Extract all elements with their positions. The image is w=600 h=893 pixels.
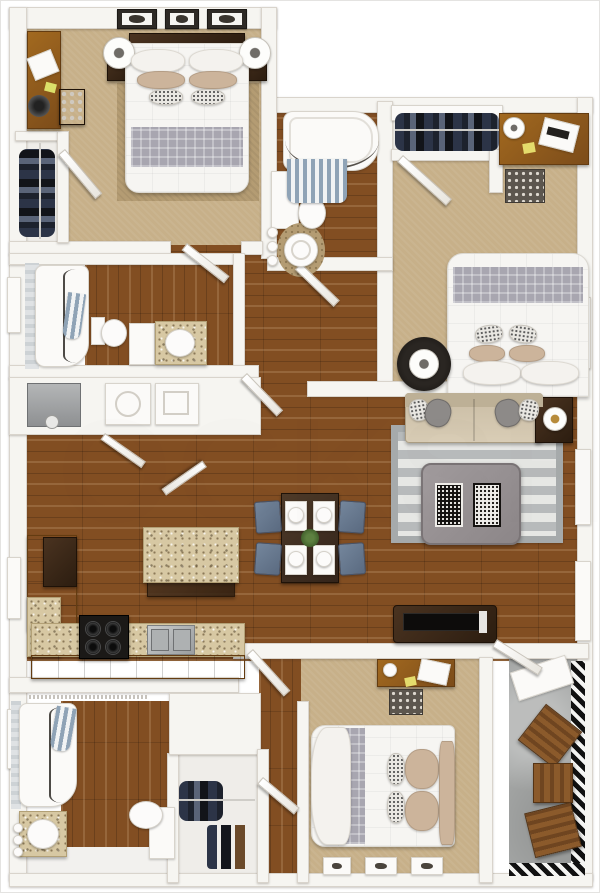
- window-right-living2: [575, 561, 591, 641]
- bed2-tan-pillow-left: [469, 345, 505, 362]
- desk1-lamp: [28, 95, 50, 117]
- closet3-rod: [179, 799, 255, 801]
- wall-fine-print: [29, 695, 149, 699]
- dryer-white-door: [163, 391, 189, 415]
- bed1-accent-pillow-right: [191, 89, 225, 105]
- pedestal-sink1-basin: [291, 240, 311, 260]
- kitchen-island: [143, 527, 239, 583]
- shelf-unit: [59, 89, 85, 125]
- bed1-pillow-tan-left: [137, 71, 185, 89]
- towel-roll-3: [267, 255, 278, 266]
- bed3-headboard: [439, 741, 455, 845]
- bed1-accent-pillow-left: [149, 89, 183, 105]
- wall-art-frame-3: [207, 9, 247, 29]
- bed2-plaid-runner: [453, 267, 583, 303]
- stove-burner-1: [85, 621, 101, 637]
- sofa-cushion-seam: [473, 399, 475, 441]
- bath3-towel-3: [13, 847, 23, 857]
- ottoman-tray-right: [473, 483, 501, 527]
- plate-1: [288, 507, 304, 523]
- toilet2-bowl: [101, 319, 127, 347]
- desk2-lamp: [503, 117, 525, 139]
- bed1-pillow-tan-right: [189, 71, 237, 89]
- bedside-lamp-left: [103, 37, 135, 69]
- window-right-living1: [575, 449, 591, 525]
- wall-kitchen-bath3: [9, 677, 239, 693]
- tv-flat: [403, 613, 487, 631]
- dining-chair-1: [254, 500, 282, 534]
- wall-bath1-bed2: [377, 101, 393, 385]
- plate-3: [288, 551, 304, 567]
- stove-burner-2: [105, 621, 121, 637]
- patio-table: [533, 763, 573, 803]
- wall-art-frame-2: [165, 9, 199, 29]
- bedside-lamp-right: [239, 37, 271, 69]
- bed1-pillow-white-right: [189, 49, 243, 73]
- bed3-accent-pillow-top: [387, 753, 405, 785]
- washer-white-door: [115, 391, 141, 417]
- toilet3-bowl: [129, 801, 163, 829]
- washer-gray-knob: [45, 415, 59, 429]
- dining-chair-4: [338, 542, 366, 576]
- kitchen-sink-basin-right: [173, 629, 191, 651]
- closet3-hanging-clothes: [179, 781, 223, 821]
- bed1-pillow-white-left: [131, 49, 185, 73]
- wall-closet1-top: [15, 131, 63, 141]
- closet1-hanging-clothes: [19, 149, 55, 237]
- closet2-hanging-clothes: [395, 113, 499, 151]
- wall-living-bottom: [233, 643, 589, 659]
- dining-chair-2: [254, 542, 282, 576]
- plate-2: [316, 507, 332, 523]
- bath2-sink: [165, 329, 195, 357]
- bed3-tan-pillow-bottom: [405, 791, 439, 831]
- window-left-kitchen: [7, 557, 21, 619]
- bed3-frame-1: [323, 857, 351, 875]
- desk2-chair: [505, 169, 545, 203]
- kitchen-counter-bottom: [31, 623, 245, 657]
- wall-closet3-right: [257, 749, 269, 883]
- closet2-rod: [395, 129, 499, 131]
- dining-chair-3: [338, 500, 366, 534]
- dining-centerpiece-plant: [301, 529, 319, 547]
- patio-rail-bottom: [509, 863, 585, 876]
- closet1-rod: [39, 143, 41, 239]
- wall-bath2-right: [233, 253, 245, 371]
- bed2-tan-pillow-right: [509, 345, 545, 362]
- closet3-boots: [207, 825, 253, 869]
- living-side-lamp: [543, 407, 567, 431]
- bed2-white-pillow-right: [521, 361, 579, 385]
- shower1-curtain: [287, 159, 347, 203]
- desk2-note: [522, 142, 536, 154]
- bed3-tan-pillow-top: [405, 749, 439, 789]
- bed2-white-pillow-left: [463, 361, 521, 385]
- ottoman-tray-left: [435, 483, 463, 527]
- towel-roll-1: [267, 227, 278, 238]
- bed3-accent-pillow-bottom: [387, 791, 405, 823]
- refrigerator: [43, 537, 77, 587]
- bath3-towel-1: [13, 823, 23, 833]
- desk3-chair: [389, 689, 423, 715]
- floor-plan-image: OCKSHE: [0, 0, 600, 893]
- wall-closet3-top-block: [169, 693, 261, 755]
- stove-burner-3: [85, 639, 101, 655]
- towel-roll-2: [267, 241, 278, 252]
- wall-art-frame-1: [117, 9, 157, 29]
- window-left-bath2: [7, 277, 21, 333]
- plate-4: [316, 551, 332, 567]
- wall-bedroom3-patio: [479, 657, 493, 883]
- bed1-plaid-blanket: [131, 127, 243, 167]
- wall-bedroom3-left: [297, 701, 309, 883]
- desk3-cup: [383, 663, 397, 677]
- bed3-frame-3: [411, 857, 443, 875]
- wall-closet1-right: [57, 131, 69, 243]
- bed2-table-lamp: [409, 349, 439, 379]
- kitchen-cabinet-fronts: [31, 655, 245, 679]
- tv-console-accent: [479, 611, 487, 633]
- kitchen-sink-basin-left: [151, 629, 169, 651]
- bath3-towel-2: [13, 835, 23, 845]
- bed3-frame-2: [365, 857, 397, 875]
- bed3-comforter-roll: [311, 727, 351, 845]
- stove-burner-4: [105, 639, 121, 655]
- bath3-sink: [27, 819, 59, 849]
- bath2-cabinet: [129, 323, 155, 365]
